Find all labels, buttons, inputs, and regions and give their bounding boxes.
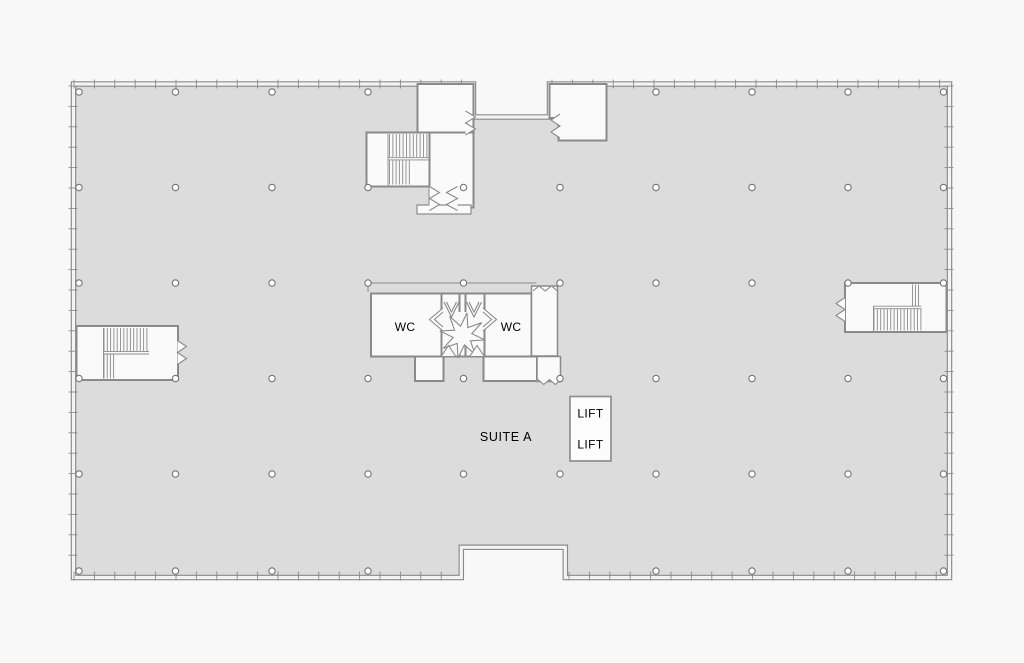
lift-label-bottom: LIFT bbox=[577, 438, 604, 452]
column-marker bbox=[749, 375, 755, 381]
column-marker bbox=[749, 568, 755, 574]
column-marker bbox=[940, 184, 946, 190]
column-marker bbox=[845, 375, 851, 381]
column-marker bbox=[76, 375, 82, 381]
column-marker bbox=[940, 568, 946, 574]
column-marker bbox=[940, 471, 946, 477]
column-marker bbox=[845, 280, 851, 286]
column-marker bbox=[749, 280, 755, 286]
column-marker bbox=[269, 184, 275, 190]
column-marker bbox=[76, 184, 82, 190]
column-marker bbox=[172, 568, 178, 574]
wc-left-label: WC bbox=[395, 320, 416, 334]
column-marker bbox=[653, 89, 659, 95]
column-marker bbox=[653, 471, 659, 477]
column-marker bbox=[365, 89, 371, 95]
lift-label-top: LIFT bbox=[577, 407, 604, 421]
right-stair-enclosure bbox=[845, 283, 947, 332]
column-marker bbox=[749, 184, 755, 190]
column-marker bbox=[845, 471, 851, 477]
column-marker bbox=[365, 471, 371, 477]
column-marker bbox=[172, 184, 178, 190]
column-marker bbox=[940, 89, 946, 95]
column-marker bbox=[76, 89, 82, 95]
column-marker bbox=[557, 375, 563, 381]
riser-shaft-right bbox=[532, 286, 558, 356]
entrance-airlock bbox=[430, 133, 474, 208]
column-marker bbox=[749, 89, 755, 95]
column-marker bbox=[460, 375, 466, 381]
column-marker bbox=[845, 89, 851, 95]
column-marker bbox=[557, 280, 563, 286]
column-marker bbox=[653, 280, 659, 286]
suite-label: SUITE A bbox=[480, 430, 532, 444]
column-marker bbox=[460, 184, 466, 190]
column-marker bbox=[460, 280, 466, 286]
column-marker bbox=[269, 375, 275, 381]
floor-plan-svg: WC WC SUITE A LIFT LIFT bbox=[0, 0, 1024, 663]
column-marker bbox=[269, 89, 275, 95]
column-marker bbox=[269, 471, 275, 477]
column-marker bbox=[365, 568, 371, 574]
column-marker bbox=[365, 280, 371, 286]
column-marker bbox=[940, 375, 946, 381]
column-marker bbox=[172, 375, 178, 381]
column-marker bbox=[172, 471, 178, 477]
column-marker bbox=[172, 280, 178, 286]
column-marker bbox=[845, 568, 851, 574]
column-marker bbox=[940, 280, 946, 286]
column-marker bbox=[653, 184, 659, 190]
column-marker bbox=[269, 280, 275, 286]
column-marker bbox=[557, 184, 563, 190]
column-marker bbox=[365, 184, 371, 190]
column-marker bbox=[845, 184, 851, 190]
column-marker bbox=[653, 375, 659, 381]
column-marker bbox=[269, 568, 275, 574]
column-marker bbox=[557, 471, 563, 477]
wc-right-label: WC bbox=[501, 320, 522, 334]
floor-plan-canvas: WC WC SUITE A LIFT LIFT bbox=[0, 0, 1024, 663]
column-marker bbox=[76, 568, 82, 574]
column-marker bbox=[365, 375, 371, 381]
column-marker bbox=[460, 471, 466, 477]
entrance-threshold bbox=[417, 205, 471, 214]
riser-box-centre bbox=[484, 357, 538, 382]
top-vestibule-room bbox=[418, 84, 474, 133]
column-marker bbox=[76, 471, 82, 477]
column-marker bbox=[653, 568, 659, 574]
riser-box-left bbox=[415, 357, 444, 382]
column-marker bbox=[172, 89, 178, 95]
column-marker bbox=[76, 280, 82, 286]
column-marker bbox=[749, 471, 755, 477]
